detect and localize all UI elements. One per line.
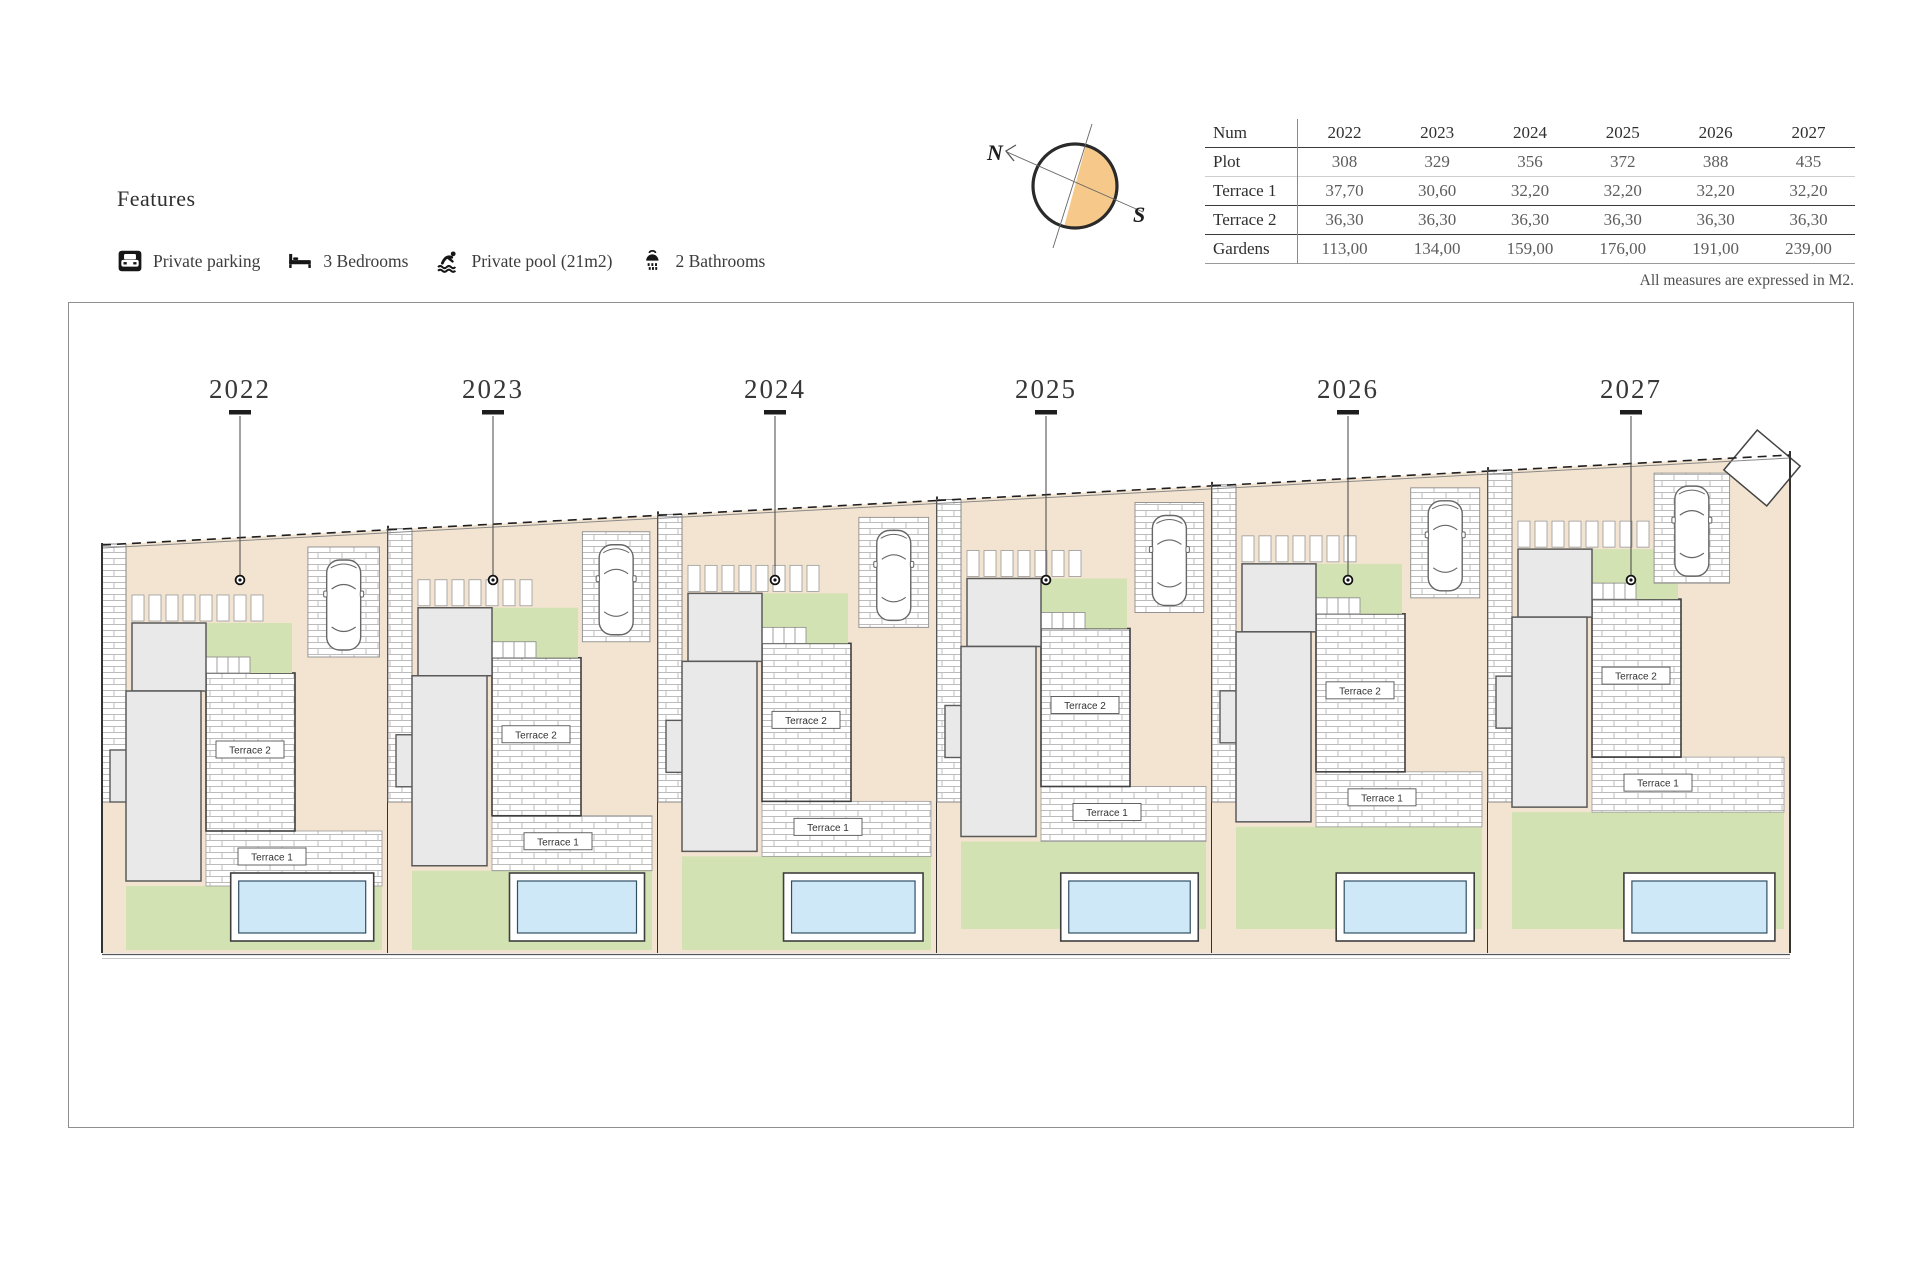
svg-text:Terrace 2: Terrace 2 [1339,686,1381,697]
paver [200,595,212,621]
svg-text:Terrace 1: Terrace 1 [1361,793,1403,804]
paver [217,595,229,621]
paver [1052,550,1064,576]
plot-2023: Terrace 2Terrace 12023 [388,374,658,953]
paver [1276,536,1288,562]
paver [1603,521,1615,547]
paver [967,550,979,576]
stairs-icon [206,657,250,673]
boundary-wall [1488,470,1512,802]
paver [722,565,734,591]
terrace-2-label: Terrace 2 [502,726,570,743]
stairs-icon [492,642,536,658]
plot-label-2027: 2027 [1600,374,1662,404]
paver [149,595,161,621]
svg-text:Terrace 2: Terrace 2 [1615,672,1657,683]
paver [1552,521,1564,547]
car-icon [596,545,636,635]
paver [1018,550,1030,576]
paver [1069,550,1081,576]
svg-text:Terrace 2: Terrace 2 [515,730,557,741]
pool [1624,873,1775,941]
paver [688,565,700,591]
stairs-icon [1592,583,1636,599]
svg-text:Terrace 2: Terrace 2 [1064,701,1106,712]
pool [1061,873,1199,941]
paver [1293,536,1305,562]
paver [1242,536,1254,562]
paver [1637,521,1649,547]
paver [1327,536,1339,562]
paver [756,565,768,591]
terrace-1-label: Terrace 1 [1073,803,1141,820]
plots-layer: Terrace 2Terrace 12022Terrace 2Terrace 1… [102,374,1800,959]
paver [520,580,532,606]
paver [1035,550,1047,576]
paver [1259,536,1271,562]
plot-label-2025: 2025 [1015,374,1077,404]
terrace-1-label: Terrace 1 [1348,789,1416,806]
paver [1310,536,1322,562]
plot-2024: Terrace 2Terrace 12024 [658,374,937,953]
paver [1535,521,1547,547]
car-icon [1149,515,1189,605]
paver [790,565,802,591]
paver [739,565,751,591]
svg-text:Terrace 2: Terrace 2 [229,746,271,757]
svg-text:Terrace 1: Terrace 1 [1086,808,1128,819]
terrace-2-label: Terrace 2 [1051,696,1119,713]
paver [1518,521,1530,547]
plot-2026: Terrace 2Terrace 12026 [1212,374,1488,953]
paver [1569,521,1581,547]
terrace-2-label: Terrace 2 [1602,667,1670,684]
terrace-1-label: Terrace 1 [524,833,592,850]
car-icon [324,560,364,650]
svg-text:Terrace 1: Terrace 1 [1637,779,1679,790]
paver [435,580,447,606]
boundary-wall [1212,485,1236,802]
svg-text:Terrace 1: Terrace 1 [251,853,293,864]
paver [1586,521,1598,547]
paver [1001,550,1013,576]
car-icon [1672,486,1712,576]
terrace-2-label: Terrace 2 [216,741,284,758]
paver [1344,536,1356,562]
paver [251,595,263,621]
siteplan-drawing: Terrace 2Terrace 12022Terrace 2Terrace 1… [0,0,1920,1280]
stairs-icon [762,627,806,643]
paver [418,580,430,606]
car-icon [874,530,914,620]
plot-2022: Terrace 2Terrace 12022 [102,374,388,953]
terrace-2-label: Terrace 2 [1326,682,1394,699]
paver [234,595,246,621]
plot-2025: Terrace 2Terrace 12025 [937,374,1212,953]
svg-text:Terrace 1: Terrace 1 [807,823,849,834]
pool [1336,873,1474,941]
plot-label-2023: 2023 [462,374,524,404]
paver [705,565,717,591]
plot-label-2024: 2024 [744,374,806,404]
paver [1620,521,1632,547]
paver [183,595,195,621]
paver [166,595,178,621]
svg-text:Terrace 1: Terrace 1 [537,837,579,848]
stairs-icon [1041,612,1085,628]
terrace-1-label: Terrace 1 [1624,774,1692,791]
plot-2027: Terrace 2Terrace 12027 [1488,374,1800,953]
terrace-2-label: Terrace 2 [772,711,840,728]
pool [784,873,924,941]
paver [132,595,144,621]
paver [984,550,996,576]
plot-label-2026: 2026 [1317,374,1379,404]
stairs-icon [1316,598,1360,614]
pool [231,873,374,941]
paver [503,580,515,606]
car-icon [1425,501,1465,591]
paver [452,580,464,606]
pool [510,873,645,941]
terrace-1-label: Terrace 1 [238,848,306,865]
plot-label-2022: 2022 [209,374,271,404]
paver [469,580,481,606]
svg-text:Terrace 2: Terrace 2 [785,716,827,727]
terrace-1-label: Terrace 1 [794,818,862,835]
paver [807,565,819,591]
